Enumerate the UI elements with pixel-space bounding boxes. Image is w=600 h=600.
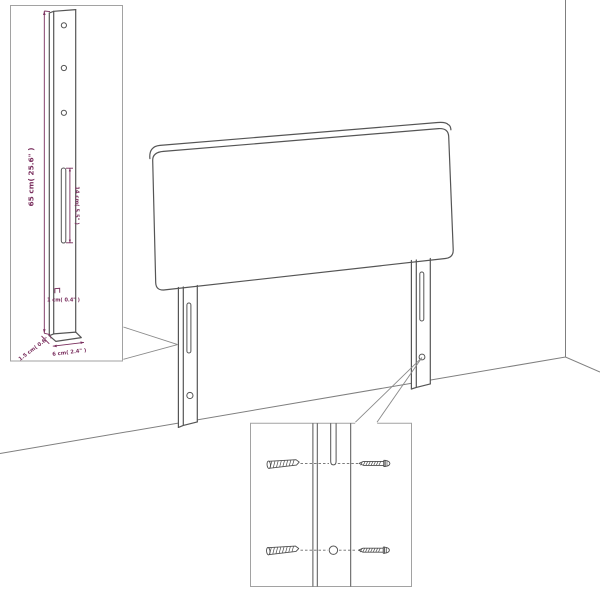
hardware-callout <box>251 423 412 586</box>
height-dimension: 65 cm( 25.6" ) <box>27 11 51 335</box>
slot-width-dimension-label: 1 cm( 0.4" ) <box>47 298 80 304</box>
headboard-panel <box>150 122 453 290</box>
screw-icon <box>359 547 390 553</box>
base-depth-dimension: 1.5 cm( 0.6" ) <box>18 334 53 363</box>
base-depth-dimension-label: 1.5 cm( 0.6" ) <box>18 334 53 363</box>
headboard-front-face <box>153 129 454 290</box>
leg-base <box>49 332 81 341</box>
base-width-dimension-label: 6 cm( 2.4" ) <box>52 348 87 358</box>
height-dimension-label: 65 cm( 25.6" ) <box>27 148 36 207</box>
slot-length-dimension-label: 14 cm( 5.5" ) <box>74 186 80 225</box>
screw-icon <box>359 460 390 466</box>
callout-cone-left <box>123 327 177 359</box>
product-diagram: 65 cm( 25.6" ) 14 cm( 5.5" ) 1 cm( 0.4" … <box>0 0 600 600</box>
leg-detail-drawing <box>49 10 81 342</box>
room-corner <box>0 0 600 454</box>
base-width-dimension: 6 cm( 2.4" ) <box>52 341 87 357</box>
headboard-leg-left <box>178 286 197 428</box>
diagram-canvas: 65 cm( 25.6" ) 14 cm( 5.5" ) 1 cm( 0.4" … <box>0 0 600 600</box>
leg-dimension-callout: 65 cm( 25.6" ) 14 cm( 5.5" ) 1 cm( 0.4" … <box>11 6 123 363</box>
callout-cone-right <box>355 358 422 423</box>
headboard-leg-right <box>411 259 430 390</box>
